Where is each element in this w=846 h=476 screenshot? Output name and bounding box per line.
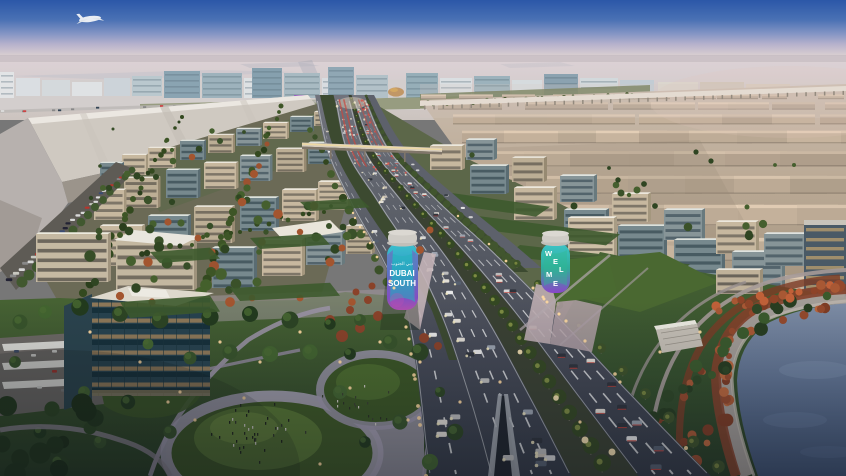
- svg-text:E: E: [553, 279, 558, 288]
- svg-text:L: L: [559, 265, 564, 274]
- svg-text:DUBAI: DUBAI: [389, 269, 414, 278]
- svg-text:W: W: [545, 249, 553, 258]
- svg-text:SOUTH: SOUTH: [388, 279, 416, 288]
- svg-text:M: M: [546, 270, 552, 279]
- svg-text:E: E: [553, 257, 558, 266]
